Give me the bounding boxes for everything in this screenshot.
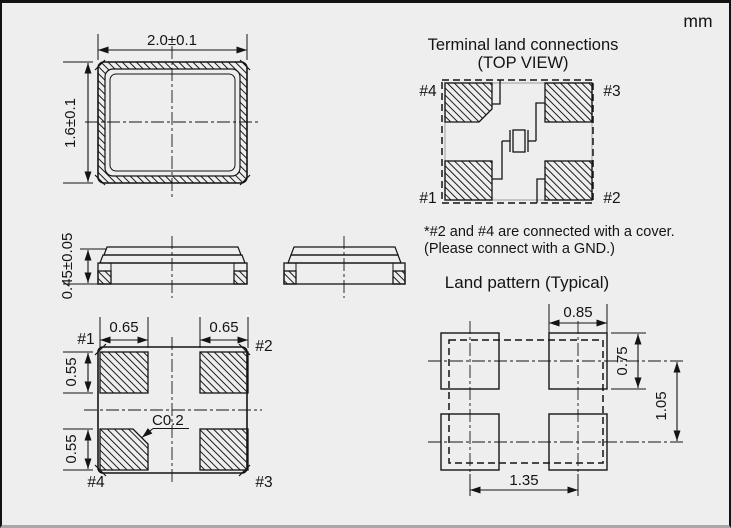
bottom-pin-label-4: #4 xyxy=(87,474,105,491)
side-view-long-pad-left xyxy=(98,271,111,284)
terminal-pad-1 xyxy=(445,161,492,200)
side-view-long-step xyxy=(100,255,245,263)
bottom-pin-label-2: #2 xyxy=(255,338,272,355)
package-lid-rim-hatch xyxy=(98,62,247,183)
dim-land-row-pitch-label: 1.05 xyxy=(653,391,670,420)
bottom-pad-4-chamfered xyxy=(100,429,148,470)
technical-drawing-canvas: mm 2.0±0.1 1.6±0.1 xyxy=(0,0,731,528)
dim-package-height: 1.6±0.1 xyxy=(62,62,93,183)
dim-pad-width-right-label: 0.65 xyxy=(209,319,238,336)
side-view-drawings: 0.45±0.05 xyxy=(59,233,405,300)
bottom-pad-1 xyxy=(100,352,148,393)
dim-land-column-pitch-label: 1.35 xyxy=(509,472,538,489)
top-view-drawing: 2.0±0.1 1.6±0.1 xyxy=(62,32,260,200)
package-corner-notches xyxy=(95,60,250,185)
dim-pad-width-left-label: 0.65 xyxy=(109,319,138,336)
land-pattern-dashed-outline xyxy=(449,340,603,463)
side-view-short-step xyxy=(288,255,401,263)
dim-land-pad-height: 0.75 xyxy=(611,333,646,389)
dim-pad-height-bottom-label: 0.55 xyxy=(63,434,80,463)
dim-pad-height-top-label: 0.55 xyxy=(63,357,80,386)
datasheet-drawing-page: mm 2.0±0.1 1.6±0.1 xyxy=(0,0,731,528)
wire-crystal-to-pad3 xyxy=(536,103,545,141)
terminal-land-subtitle: (TOP VIEW) xyxy=(477,54,568,72)
dim-package-thickness-label: 0.45±0.05 xyxy=(59,233,76,300)
side-view-long-body xyxy=(98,263,247,284)
side-view-long-lid xyxy=(104,247,241,255)
side-view-short xyxy=(284,236,405,298)
land-pattern-diagram: Land pattern (Typical) 0.85 0.75 xyxy=(428,273,683,496)
dim-pad-height-bottom: 0.55 xyxy=(63,429,93,470)
wire-crystal-to-pad1 xyxy=(492,141,502,179)
terminal-pad-2 xyxy=(545,161,592,200)
cover-note-line2: (Please connect with a GND.) xyxy=(424,241,615,257)
side-view-short-pad-right xyxy=(393,271,405,284)
side-view-short-pad-left xyxy=(284,271,296,284)
dim-land-column-pitch: 1.35 xyxy=(470,472,578,496)
dim-pad-height-top: 0.55 xyxy=(63,352,93,393)
cover-note-line1: *#2 and #4 are connected with a cover. xyxy=(424,224,675,240)
terminal-land-title: Terminal land connections xyxy=(428,36,619,54)
terminal-pin-label-1: #1 xyxy=(419,190,436,207)
land-pattern-title: Land pattern (Typical) xyxy=(445,273,609,292)
dim-package-height-label: 1.6±0.1 xyxy=(62,98,79,148)
dim-land-pad-width-label: 0.85 xyxy=(563,304,592,321)
dim-land-pad-height-label: 0.75 xyxy=(614,346,631,375)
package-cavity-outline xyxy=(110,74,235,171)
bottom-pin-label-1: #1 xyxy=(77,331,94,348)
terminal-pad-4-chamfered xyxy=(445,83,492,122)
side-view-short-body xyxy=(284,263,405,284)
bottom-pin-label-3: #3 xyxy=(255,474,272,491)
side-view-long-pad-right xyxy=(234,271,247,284)
package-lid-seam-outline xyxy=(105,69,240,176)
dim-package-thickness: 0.45±0.05 xyxy=(59,233,107,300)
dim-chamfer-label: C0.2 xyxy=(152,412,184,429)
terminal-pin-label-4: #4 xyxy=(419,83,437,100)
package-outer-outline xyxy=(98,62,247,183)
unit-label: mm xyxy=(683,11,712,31)
dim-pad-width-right: 0.65 xyxy=(200,317,248,348)
bottom-pad-3 xyxy=(200,429,248,470)
bottom-view-drawing: 0.65 0.65 0.55 0.55 C0.2 #1 #2 xyxy=(63,317,273,491)
terminal-pad-3 xyxy=(545,83,592,122)
terminal-pin-label-3: #3 xyxy=(603,83,620,100)
side-view-long xyxy=(98,236,247,298)
terminal-pin-label-2: #2 xyxy=(603,190,620,207)
crystal-symbol xyxy=(502,130,536,152)
side-view-short-lid xyxy=(291,247,398,255)
dim-land-row-pitch: 1.05 xyxy=(653,362,677,441)
terminal-land-connections-diagram: Terminal land connections (TOP VIEW) #4 … xyxy=(419,36,674,257)
dim-package-width-label: 2.0±0.1 xyxy=(147,32,197,49)
dim-package-width: 2.0±0.1 xyxy=(98,32,247,60)
bottom-pad-2 xyxy=(200,352,248,393)
dim-pad-width-left: 0.65 xyxy=(100,317,148,348)
dim-chamfer-callout: C0.2 xyxy=(142,412,189,438)
